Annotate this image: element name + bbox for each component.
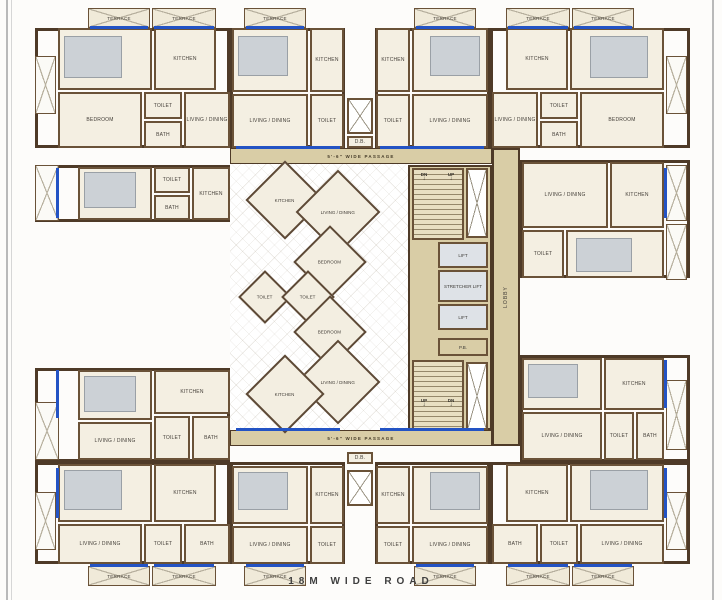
room-toilet: TOILET [310, 526, 344, 564]
window-strip [664, 360, 667, 408]
room-bath: BATH [184, 524, 230, 564]
window-strip [416, 564, 474, 567]
room-label: TOILET [300, 294, 316, 299]
room-label: BEDROOM [318, 259, 341, 264]
room-toilet: TOILET [154, 416, 190, 460]
window-strip [56, 370, 59, 418]
page-border-right [712, 0, 714, 600]
room-bath: BATH [636, 412, 664, 460]
room-living-dining: LIVING / DINING [412, 526, 488, 564]
room-toilet: TOILET [144, 92, 182, 119]
window-strip [416, 26, 474, 29]
window-strip [154, 26, 214, 29]
room-bedroom: BEDROOM [58, 92, 142, 148]
room-bath: BATH [540, 121, 578, 148]
floor-plan: DN↓ UP↓ UP↓ DN↓ LIFT STRETCHER LIFT LIFT… [0, 0, 722, 600]
bed-furniture [590, 36, 648, 78]
bed-furniture [430, 472, 480, 510]
window-strip [380, 428, 484, 431]
lobby-label: LOBBY [471, 279, 541, 315]
bed-furniture [84, 172, 136, 208]
terrace: TERRACE [88, 8, 150, 28]
duct-shaft [347, 470, 373, 506]
stair-top-up-label: UP↓ [441, 172, 461, 182]
window-strip [508, 564, 568, 567]
page-border-left [6, 0, 8, 600]
terrace: TERRACE [506, 8, 570, 28]
down-arrow-icon: ↓ [414, 177, 434, 182]
stair-bottom-up-label: UP↓ [414, 398, 434, 408]
road-label: 18M WIDE ROAD [230, 576, 492, 587]
room-d-b-: D.B. [347, 136, 373, 148]
room-living-dining: LIVING / DINING [232, 526, 308, 564]
down-arrow-icon: ↓ [414, 403, 434, 408]
window-strip [56, 168, 59, 218]
room-toilet: TOILET [310, 94, 344, 148]
room-toilet: TOILET [376, 94, 410, 148]
terrace: TERRACE [572, 8, 634, 28]
window-strip [380, 146, 484, 149]
room-kitchen: KITCHEN [310, 28, 344, 92]
stair-top-dn-label: DN↓ [414, 172, 434, 182]
window-strip [90, 564, 148, 567]
lift-top: LIFT [438, 242, 488, 268]
room-label: BEDROOM [318, 329, 341, 334]
terrace: TERRACE [152, 8, 216, 28]
window-strip [246, 564, 304, 567]
duct-shaft [466, 168, 488, 238]
room-label: KITCHEN [275, 391, 295, 396]
room-bath: BATH [492, 524, 538, 564]
bed-furniture [576, 238, 632, 272]
terrace: TERRACE [152, 566, 216, 586]
terrace-hatch-strip [666, 56, 687, 114]
room-toilet: TOILET [144, 524, 182, 564]
room-toilet: TOILET [376, 526, 410, 564]
passage-top: 5'-6" WIDE PASSAGE [230, 148, 492, 164]
down-arrow-icon: ↓ [441, 177, 461, 182]
room-toilet: TOILET [154, 167, 190, 193]
room-kitchen: KITCHEN [376, 466, 410, 524]
room-kitchen: KITCHEN [154, 464, 216, 522]
window-strip [664, 168, 667, 218]
room-living-dining: LIVING / DINING [232, 94, 308, 148]
window-strip [574, 564, 632, 567]
room-bath: BATH [154, 195, 190, 220]
room-kitchen: KITCHEN [604, 358, 664, 410]
duct-shaft [466, 362, 488, 430]
room-kitchen: KITCHEN [192, 167, 230, 220]
room-label: LIVING / DINING [321, 379, 355, 384]
terrace: TERRACE [572, 566, 634, 586]
terrace: TERRACE [244, 8, 306, 28]
passage-bottom: 5'-6" WIDE PASSAGE [230, 430, 492, 446]
terrace-hatch-strip [666, 165, 687, 221]
room-kitchen: KITCHEN [376, 28, 410, 92]
page-border-left-inner [11, 0, 12, 600]
room-kitchen: KITCHEN [610, 162, 664, 228]
bed-furniture [64, 470, 122, 510]
pb-room: P.B. [438, 338, 488, 356]
window-strip [246, 26, 304, 29]
window-strip [56, 468, 59, 518]
room-kitchen: KITCHEN [154, 28, 216, 90]
window-strip [236, 428, 340, 431]
window-strip [664, 468, 667, 518]
room-bath: BATH [144, 121, 182, 148]
room-label: KITCHEN [275, 197, 295, 202]
room-toilet: TOILET [540, 524, 578, 564]
room-living-dining: LIVING / DINING [580, 524, 664, 564]
room-living-dining: LIVING / DINING [492, 92, 538, 148]
room-label: TOILET [257, 294, 273, 299]
bed-furniture [84, 376, 136, 412]
bed-furniture [590, 470, 648, 510]
room-living-dining: LIVING / DINING [522, 162, 608, 228]
stair-bottom-dn-label: DN↓ [441, 398, 461, 408]
terrace: TERRACE [414, 8, 476, 28]
room-kitchen: KITCHEN [154, 370, 230, 414]
duct-shaft [347, 98, 373, 134]
room-toilet: TOILET [540, 92, 578, 119]
terrace: TERRACE [88, 566, 150, 586]
room-d-b-: D.B. [347, 452, 373, 464]
bed-furniture [238, 36, 288, 76]
room-toilet: TOILET [604, 412, 634, 460]
room-kitchen: KITCHEN [506, 28, 568, 90]
room-living-dining: LIVING / DINING [78, 422, 152, 460]
room-living-dining: LIVING / DINING [522, 412, 602, 460]
bed-furniture [430, 36, 480, 76]
room-living-dining: LIVING / DINING [412, 94, 488, 148]
window-strip [574, 26, 632, 29]
terrace-hatch-strip [35, 492, 56, 550]
staircase-bottom [412, 360, 464, 430]
terrace-hatch-strip [666, 224, 687, 280]
room-living-dining: LIVING / DINING [184, 92, 230, 148]
room-toilet: TOILET [522, 230, 564, 278]
room-label: LIVING / DINING [321, 209, 355, 214]
terrace: TERRACE [506, 566, 570, 586]
window-strip [236, 146, 340, 149]
room-bedroom: BEDROOM [580, 92, 664, 148]
down-arrow-icon: ↓ [441, 403, 461, 408]
room-bath: BATH [192, 416, 230, 460]
window-strip [508, 26, 568, 29]
window-strip [90, 26, 148, 29]
room-living-dining: LIVING / DINING [58, 524, 142, 564]
window-strip [154, 564, 214, 567]
room-kitchen: KITCHEN [506, 464, 568, 522]
bed-furniture [238, 472, 288, 510]
room-kitchen: KITCHEN [310, 466, 344, 524]
terrace-hatch-strip [666, 492, 687, 550]
bed-furniture [64, 36, 122, 78]
bed-furniture [528, 364, 578, 398]
terrace-hatch-strip [666, 380, 687, 450]
terrace-hatch-strip [35, 56, 56, 114]
